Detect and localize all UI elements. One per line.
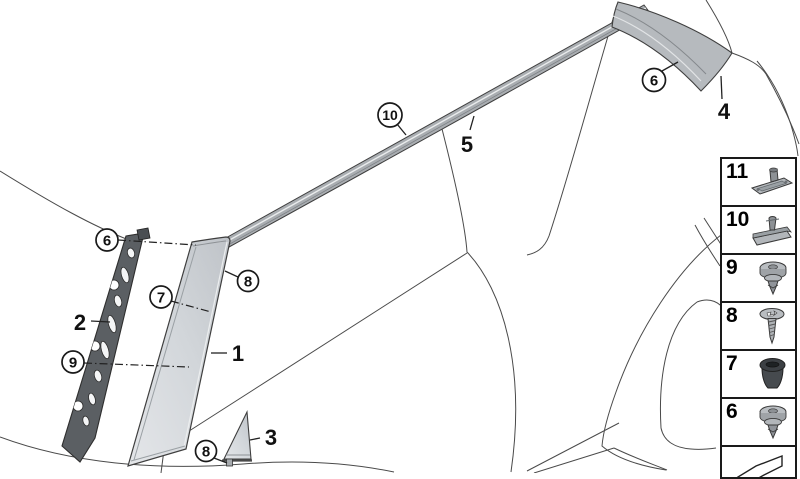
legend-item-direction[interactable] (722, 447, 795, 479)
part-rear-quarter-trim[interactable] (612, 2, 732, 91)
vehicle-trim-diagram: 10 5 6 4 6 7 8 2 9 1 3 8 (0, 0, 800, 473)
beltline (186, 253, 467, 433)
svg-text:8: 8 (202, 443, 210, 460)
rubber-grommet-icon (749, 352, 795, 398)
legend-item-number: 9 (726, 256, 738, 279)
callout-7[interactable]: 7 (150, 286, 172, 308)
legend-item-number: 6 (726, 400, 738, 423)
legend-item-7[interactable]: 7 (722, 351, 795, 399)
svg-text:10: 10 (382, 107, 398, 123)
sill-line-1 (527, 423, 619, 471)
callout-9[interactable]: 9 (62, 351, 84, 373)
mounting-clip-icon (749, 208, 795, 254)
clip-on-triangle (227, 459, 233, 466)
screw-icon (749, 304, 795, 350)
svg-text:6: 6 (103, 232, 111, 249)
callout-8-lower[interactable]: 8 (196, 441, 217, 462)
callout-3[interactable]: 3 (265, 425, 277, 450)
sill-branch-line (614, 448, 667, 470)
svg-text:6: 6 (650, 72, 658, 89)
part-mounting-bracket[interactable] (62, 228, 150, 462)
door-rear-edge-line (441, 125, 516, 472)
legend-item-number: 10 (726, 208, 749, 231)
legend-item-9[interactable]: 9 (722, 255, 795, 303)
legend-item-number: 7 (726, 352, 738, 375)
callout-6-front[interactable]: 6 (96, 229, 118, 251)
svg-text:8: 8 (244, 273, 252, 290)
callout-1[interactable]: 1 (232, 341, 244, 366)
svg-text:9: 9 (69, 354, 77, 371)
part-corner-triangle[interactable] (222, 412, 252, 466)
legend-item-10[interactable]: 10 (722, 207, 795, 255)
hatch-line-1 (757, 61, 798, 156)
fasteners-legend: 11 10 9 (720, 157, 797, 479)
legend-item-number: 11 (726, 160, 748, 183)
callout-6-rear[interactable]: 6 (643, 69, 666, 92)
wheel-opening-line (660, 302, 716, 449)
callout-5[interactable]: 5 (461, 132, 473, 157)
legend-item-6[interactable]: 6 (722, 399, 795, 447)
callout-4[interactable]: 4 (718, 99, 731, 124)
hatch-line-2 (695, 225, 720, 266)
callout-8-upper[interactable]: 8 (238, 271, 259, 292)
parts-diagram-page: { "diagram": { "type": "exploded-parts-l… (0, 0, 800, 473)
push-rivet-icon (749, 256, 795, 302)
sill-line-2 (534, 448, 614, 473)
c-pillar-line-2 (732, 53, 799, 144)
mounting-rail-clip-icon (749, 160, 795, 206)
callout-10[interactable]: 10 (378, 103, 402, 127)
legend-item-11[interactable]: 11 (722, 159, 795, 207)
callout-2[interactable]: 2 (74, 310, 86, 335)
rear-fender-line (602, 235, 721, 470)
legend-item-8[interactable]: 8 (722, 303, 795, 351)
part-pillar-trim-panel[interactable] (128, 237, 230, 466)
clip-on-bracket-top (137, 228, 150, 240)
legend-item-number: 8 (726, 304, 738, 327)
car-body-outline (0, 0, 799, 473)
part-roof-trim-strip[interactable] (224, 5, 650, 247)
windshield-edge-line (0, 171, 137, 243)
direction-arrow-icon (730, 451, 776, 479)
svg-text:7: 7 (157, 289, 165, 306)
push-rivet-icon (749, 400, 795, 446)
